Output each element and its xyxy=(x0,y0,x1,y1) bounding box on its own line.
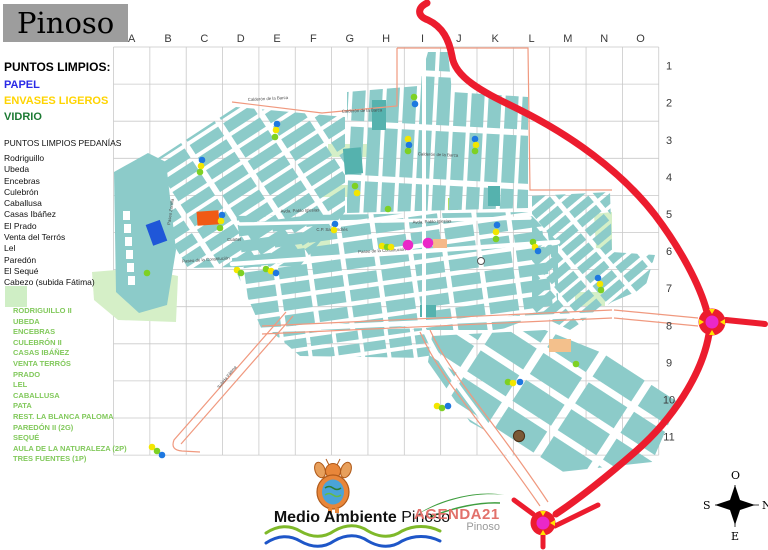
pedania-item: Casas Ibáñez xyxy=(4,209,121,220)
recycling-point-vidrio xyxy=(598,287,605,294)
pedania-item: Paredón xyxy=(4,255,121,266)
grid-letter: N xyxy=(600,33,608,45)
magenta-marker xyxy=(403,240,414,251)
pedania-green-item: TRES FUENTES (1P) xyxy=(13,454,127,465)
legend-item-envases: ENVASES LIGEROS xyxy=(4,93,110,109)
grid-letter: J xyxy=(456,33,462,45)
pedanias-green-list: RODRIGUILLO IIUBEDAENCEBRASCULEBRÓN IICA… xyxy=(13,306,127,465)
recycling-point-vidrio xyxy=(385,206,392,213)
pedania-green-item: VENTA TERRÓS xyxy=(13,359,127,370)
agenda21-logo: AGENDA21 Pinoso xyxy=(414,492,514,533)
grid-letter: O xyxy=(636,33,645,45)
grid-number: 7 xyxy=(666,283,672,295)
pedania-green-item: SEQUÉ xyxy=(13,433,127,444)
compass-label-top: O xyxy=(731,469,740,482)
recycling-point-envases xyxy=(273,127,280,134)
map-poster: { "title": "Pinoso", "legend": { "headin… xyxy=(0,0,768,550)
pedania-green-item: PAREDÓN II (2G) xyxy=(13,423,127,434)
grid-letter: G xyxy=(345,33,354,45)
pedania-point-swatch xyxy=(5,286,27,307)
recycling-point-envases xyxy=(510,380,517,387)
map-title: Pinoso xyxy=(3,4,128,42)
pedania-green-item: PATA xyxy=(13,401,127,412)
pedania-item: Rodriguillo xyxy=(4,153,121,164)
legend-item-papel: PAPEL xyxy=(4,77,110,93)
grid-row-numbers: 1234567891011 xyxy=(663,61,675,444)
grid-number: 4 xyxy=(666,172,672,184)
pedania-item: Caballusa xyxy=(4,198,121,209)
peach-building xyxy=(433,239,447,248)
grid-letter: B xyxy=(164,33,171,45)
recycling-point-envases xyxy=(493,229,500,236)
pedanias-list: RodriguilloUbedaEncebrasCulebrónCaballus… xyxy=(4,153,121,289)
recycling-point-papel xyxy=(535,248,542,255)
pedania-green-item: AULA DE LA NATURALEZA (2P) xyxy=(13,444,127,455)
roundabout-south xyxy=(531,511,556,536)
recycling-point-papel xyxy=(273,270,280,277)
recycling-point-papel xyxy=(159,452,166,459)
pedania-item: El Prado xyxy=(4,221,121,232)
recycling-point-papel xyxy=(199,157,206,164)
recycling-point-papel xyxy=(494,222,501,229)
grid-letter: K xyxy=(492,33,500,45)
grid-number: 11 xyxy=(663,432,674,444)
grid-number: 9 xyxy=(666,357,672,369)
grid-letter: D xyxy=(237,33,245,45)
grid-number: 6 xyxy=(666,246,672,258)
recycling-point-envases xyxy=(218,218,225,225)
pedania-item: Culebrón xyxy=(4,187,121,198)
recycling-point-envases xyxy=(405,136,412,143)
grid-letter: L xyxy=(528,33,534,45)
recycling-point-vidrio xyxy=(472,148,479,155)
street-label: Subida Fátima xyxy=(216,364,238,389)
recycling-point-vidrio xyxy=(405,148,412,155)
magenta-marker xyxy=(423,238,434,249)
recycling-point-envases xyxy=(597,281,604,288)
brand-bold: Medio Ambiente xyxy=(274,509,397,526)
pedanias-section: PUNTOS LIMPIOS PEDANÍAS RodriguilloUbeda… xyxy=(4,138,121,289)
recycling-point-vidrio xyxy=(493,236,500,243)
compass-label-right: N xyxy=(762,499,768,512)
grid-letter: A xyxy=(128,33,136,45)
pedania-item: Ubeda xyxy=(4,164,121,175)
title-text: Pinoso xyxy=(17,6,114,40)
recycling-point-vidrio xyxy=(217,225,224,232)
compass-label-bottom: E xyxy=(731,530,739,543)
recycling-point-papel xyxy=(412,101,419,108)
recycling-point-papel xyxy=(595,275,602,282)
pedania-green-item: ENCEBRAS xyxy=(13,327,127,338)
grid-number: 10 xyxy=(663,394,675,406)
brown-marker xyxy=(513,430,524,441)
recycling-point-envases xyxy=(473,142,480,149)
recycling-point-papel xyxy=(274,121,281,128)
recycling-point-envases xyxy=(388,244,395,251)
recycling-point-papel xyxy=(517,379,524,386)
pedania-green-item: PRADO xyxy=(13,370,127,381)
recycling-point-papel xyxy=(445,403,452,410)
grid-number: 8 xyxy=(666,320,672,332)
grid-number: 5 xyxy=(666,209,672,221)
pedania-green-item: CASAS IBÁÑEZ xyxy=(13,348,127,359)
recycling-point-envases xyxy=(354,190,361,197)
grid-letter: C xyxy=(200,33,208,45)
recycling-point-envases xyxy=(198,163,205,170)
grid-letter: M xyxy=(563,33,572,45)
street-label: Cuartel xyxy=(227,237,241,242)
recycling-point-papel xyxy=(472,136,479,143)
pedanias-heading: PUNTOS LIMPIOS PEDANÍAS xyxy=(4,138,121,148)
recycling-point-vidrio xyxy=(411,94,418,101)
recycling-point-vidrio xyxy=(144,270,151,277)
pedania-item: El Sequé xyxy=(4,266,121,277)
recycling-point-envases xyxy=(331,227,338,234)
orange-building xyxy=(197,210,220,226)
grid-letter: F xyxy=(310,33,317,45)
compass-rose xyxy=(715,485,759,527)
legend: PUNTOS LIMPIOS: PAPEL ENVASES LIGEROS VI… xyxy=(4,60,110,125)
plaza-circle xyxy=(478,258,485,265)
pedania-item: Venta del Terrós xyxy=(4,232,121,243)
roundabout-north xyxy=(699,309,726,336)
recycling-point-vidrio xyxy=(272,134,279,141)
recycling-point-vidrio xyxy=(197,169,204,176)
pedania-green-item: CABALLUSA xyxy=(13,391,127,402)
legend-item-vidrio: VIDRIO xyxy=(4,109,110,125)
recycling-point-vidrio xyxy=(352,183,359,190)
pedania-green-item: CULEBRÓN II xyxy=(13,338,127,349)
grid-number: 1 xyxy=(666,61,672,73)
recycling-point-vidrio xyxy=(238,270,245,277)
pedania-green-item: REST. LA BLANCA PALOMA xyxy=(13,412,127,423)
mascot-logo xyxy=(313,459,354,513)
compass-label-left: S xyxy=(703,499,711,512)
grid-letter: I xyxy=(421,33,424,45)
recycling-point-papel xyxy=(406,142,413,149)
tan-building xyxy=(549,339,571,352)
recycling-point-papel xyxy=(219,212,226,219)
grid-letter: H xyxy=(382,33,390,45)
grid-number: 3 xyxy=(666,135,672,147)
pedania-green-item: RODRIGUILLO II xyxy=(13,306,127,317)
grid-number: 2 xyxy=(666,98,672,110)
recycling-point-vidrio xyxy=(439,405,446,412)
street-label: Calderón de la Barca xyxy=(248,95,289,102)
pedania-item: Lel xyxy=(4,243,121,254)
recycling-point-papel xyxy=(332,221,339,228)
pedania-green-item: UBEDA xyxy=(13,317,127,328)
pedania-green-item: LEL xyxy=(13,380,127,391)
recycling-point-vidrio xyxy=(573,361,580,368)
grid-letter: E xyxy=(273,33,280,45)
pedania-item: Encebras xyxy=(4,176,121,187)
grid-column-letters: ABCDEFGHIJKLMNO xyxy=(128,33,645,45)
legend-heading: PUNTOS LIMPIOS: xyxy=(4,60,110,74)
